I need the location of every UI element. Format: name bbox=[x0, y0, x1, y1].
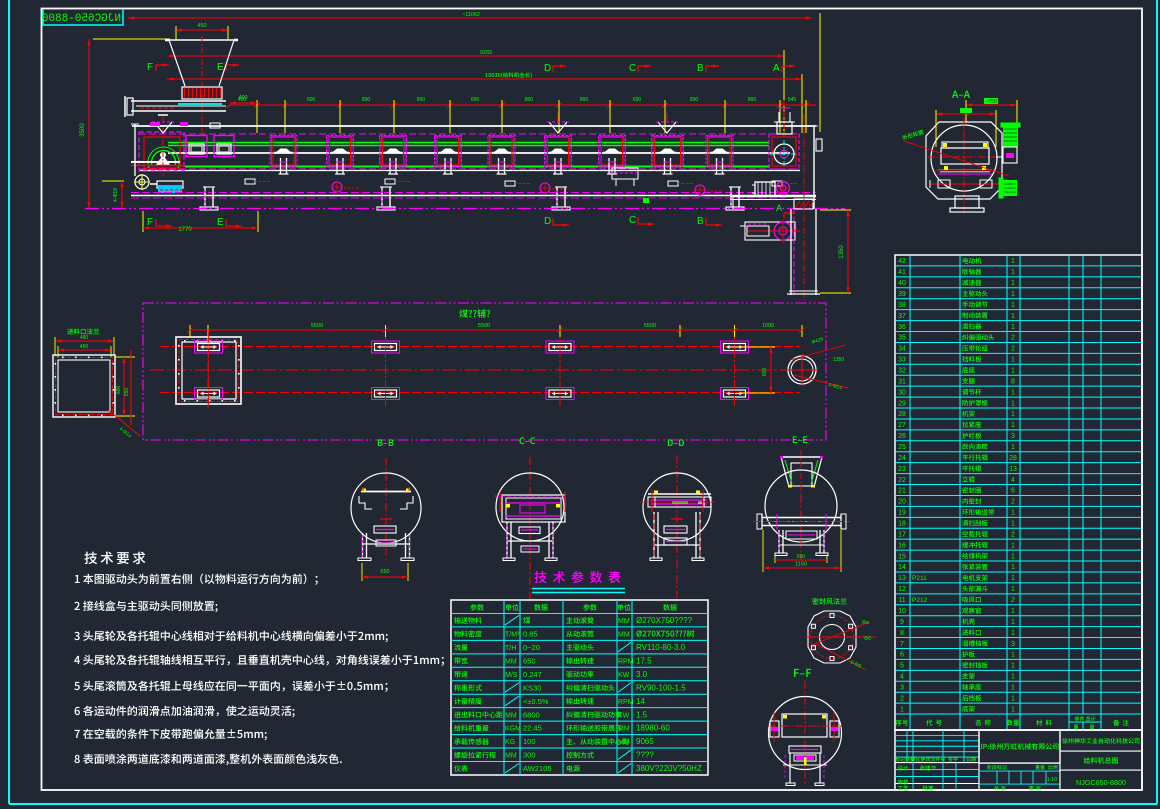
svg-text:MM: MM bbox=[618, 632, 630, 639]
svg-text:650: 650 bbox=[523, 656, 536, 665]
svg-text:650: 650 bbox=[124, 388, 130, 397]
svg-text:1: 1 bbox=[1011, 521, 1015, 528]
svg-text:MM: MM bbox=[618, 726, 630, 733]
svg-text:22.45: 22.45 bbox=[523, 724, 542, 733]
svg-text:0.85: 0.85 bbox=[523, 630, 538, 639]
svg-text:5500: 5500 bbox=[311, 323, 323, 329]
svg-text:T/M³: T/M³ bbox=[505, 632, 520, 639]
svg-text:????: ???? bbox=[636, 751, 654, 760]
svg-text:E: E bbox=[217, 217, 224, 228]
svg-text:MM: MM bbox=[505, 753, 517, 760]
svg-text:10: 10 bbox=[898, 608, 906, 615]
svg-text:800: 800 bbox=[748, 97, 757, 103]
svg-text:E: E bbox=[217, 62, 224, 73]
svg-text:2: 2 bbox=[1011, 335, 1015, 342]
svg-text:Ø270X750????: Ø270X750???? bbox=[636, 616, 693, 625]
svg-text:AW2105: AW2105 bbox=[523, 764, 552, 773]
svg-text:3.0: 3.0 bbox=[636, 670, 648, 679]
svg-text:1: 1 bbox=[1011, 586, 1015, 593]
svg-text:34: 34 bbox=[898, 346, 906, 353]
svg-text:1: 1 bbox=[1011, 684, 1015, 691]
svg-text:1000: 1000 bbox=[762, 323, 774, 329]
svg-text:RV110-80-3.0: RV110-80-3.0 bbox=[636, 643, 686, 652]
svg-text:1: 1 bbox=[1011, 400, 1015, 407]
svg-text:380V?220V?50HZ: 380V?220V?50HZ bbox=[636, 764, 702, 773]
svg-text:KW: KW bbox=[618, 672, 630, 679]
svg-text:M/S: M/S bbox=[505, 672, 518, 679]
svg-text:1350: 1350 bbox=[839, 245, 845, 259]
svg-text:1: 1 bbox=[1011, 411, 1015, 418]
svg-text:2: 2 bbox=[900, 695, 904, 702]
svg-text:1: 1 bbox=[1011, 313, 1015, 320]
svg-text:5500: 5500 bbox=[644, 323, 656, 329]
svg-text:1: 1 bbox=[900, 706, 904, 713]
svg-text:D: D bbox=[544, 216, 551, 227]
svg-text:5: 5 bbox=[900, 663, 904, 670]
svg-text:D: D bbox=[544, 63, 551, 74]
svg-text:2: 2 bbox=[1011, 597, 1015, 604]
svg-text:3: 3 bbox=[900, 684, 904, 691]
svg-text:B: B bbox=[697, 216, 704, 227]
svg-text:29: 29 bbox=[898, 400, 906, 407]
svg-text:21: 21 bbox=[898, 488, 906, 495]
svg-text:T/H: T/H bbox=[505, 645, 516, 652]
svg-text:650: 650 bbox=[797, 554, 806, 560]
svg-text:13: 13 bbox=[1009, 466, 1017, 473]
svg-text:18980-60: 18980-60 bbox=[636, 724, 670, 733]
svg-text:1: 1 bbox=[1011, 706, 1015, 713]
svg-text:2: 2 bbox=[1011, 499, 1015, 506]
svg-text:9: 9 bbox=[900, 619, 904, 626]
svg-text:37: 37 bbox=[898, 313, 906, 320]
svg-text:5500: 5500 bbox=[478, 323, 490, 329]
svg-text:KG: KG bbox=[505, 739, 515, 746]
svg-text:9065: 9065 bbox=[636, 737, 654, 746]
svg-text:4: 4 bbox=[900, 674, 904, 681]
svg-text:12: 12 bbox=[898, 586, 906, 593]
svg-text:13: 13 bbox=[898, 575, 906, 582]
svg-text:P211: P211 bbox=[912, 575, 927, 582]
svg-text:1: 1 bbox=[1011, 674, 1015, 681]
svg-text:19: 19 bbox=[898, 510, 906, 517]
svg-text:1: 1 bbox=[1011, 575, 1015, 582]
svg-text:1: 1 bbox=[1011, 291, 1015, 298]
svg-text:NJGC650-8800: NJGC650-8800 bbox=[1076, 778, 1126, 787]
svg-text:14: 14 bbox=[898, 564, 906, 571]
svg-text:40: 40 bbox=[898, 280, 906, 287]
svg-text:41: 41 bbox=[898, 269, 906, 276]
svg-text:Φa: Φa bbox=[862, 620, 869, 626]
svg-text:28: 28 bbox=[898, 411, 906, 418]
svg-text:14: 14 bbox=[636, 697, 645, 706]
svg-text:23: 23 bbox=[898, 466, 906, 473]
svg-text:0~20: 0~20 bbox=[523, 643, 540, 652]
svg-text:A: A bbox=[773, 63, 780, 74]
svg-text:1350: 1350 bbox=[833, 357, 844, 363]
svg-text:RPM: RPM bbox=[618, 658, 634, 665]
svg-text:1: 1 bbox=[1011, 269, 1015, 276]
svg-text:1: 1 bbox=[1011, 510, 1015, 517]
svg-text:1: 1 bbox=[1011, 608, 1015, 615]
svg-text:Φ0: Φ0 bbox=[864, 636, 871, 642]
svg-text:4: 4 bbox=[1011, 477, 1015, 484]
svg-text:1: 1 bbox=[1011, 444, 1015, 451]
svg-text:1: 1 bbox=[1011, 422, 1015, 429]
svg-text:400: 400 bbox=[238, 95, 247, 101]
svg-text:1: 1 bbox=[1011, 542, 1015, 549]
svg-text:4-Φ18: 4-Φ18 bbox=[113, 188, 119, 202]
svg-text:1: 1 bbox=[1011, 258, 1015, 265]
svg-text:1: 1 bbox=[1011, 302, 1015, 309]
svg-text:1: 1 bbox=[1011, 389, 1015, 396]
svg-text:300: 300 bbox=[523, 751, 536, 760]
svg-text:3: 3 bbox=[1011, 641, 1015, 648]
svg-text:480: 480 bbox=[80, 335, 89, 341]
svg-text:100: 100 bbox=[523, 737, 536, 746]
svg-text:7: 7 bbox=[900, 641, 904, 648]
svg-text:KS30: KS30 bbox=[523, 683, 541, 692]
svg-text:RV90-100-1.5: RV90-100-1.5 bbox=[636, 683, 686, 692]
svg-text:<±0.5%: <±0.5% bbox=[523, 697, 549, 706]
svg-text:1: 1 bbox=[1011, 324, 1015, 331]
svg-text:2: 2 bbox=[1011, 531, 1015, 538]
svg-text:6800: 6800 bbox=[523, 710, 540, 719]
svg-text:RPM: RPM bbox=[618, 699, 634, 706]
svg-text:18: 18 bbox=[898, 521, 906, 528]
svg-text:6: 6 bbox=[900, 652, 904, 659]
svg-text:1: 1 bbox=[1011, 357, 1015, 364]
svg-text:8: 8 bbox=[1011, 378, 1015, 385]
svg-text:0.247: 0.247 bbox=[523, 670, 542, 679]
svg-text:38: 38 bbox=[898, 302, 906, 309]
svg-text:32: 32 bbox=[898, 368, 906, 375]
svg-text:P212: P212 bbox=[912, 597, 928, 604]
svg-text:B: B bbox=[697, 63, 704, 74]
svg-text:1: 1 bbox=[1011, 619, 1015, 626]
svg-text:800: 800 bbox=[362, 97, 371, 103]
svg-text:800: 800 bbox=[417, 97, 426, 103]
svg-text:3: 3 bbox=[1011, 433, 1015, 440]
svg-text:800: 800 bbox=[690, 97, 699, 103]
svg-text:1: 1 bbox=[1011, 368, 1015, 375]
svg-text:650: 650 bbox=[762, 368, 768, 377]
svg-text:450: 450 bbox=[80, 344, 89, 350]
svg-text:~11062: ~11062 bbox=[462, 12, 480, 18]
svg-text:1: 1 bbox=[1011, 564, 1015, 571]
svg-text:11: 11 bbox=[898, 597, 905, 604]
svg-text:33: 33 bbox=[898, 357, 906, 364]
svg-text:9265: 9265 bbox=[480, 50, 492, 56]
svg-text:MM: MM bbox=[618, 618, 630, 625]
svg-text:42: 42 bbox=[898, 258, 906, 265]
svg-text:F: F bbox=[147, 62, 153, 73]
svg-text:1:10: 1:10 bbox=[1047, 777, 1058, 783]
svg-text:600: 600 bbox=[116, 386, 122, 395]
svg-text:2: 2 bbox=[1011, 346, 1015, 353]
svg-text:450: 450 bbox=[197, 23, 206, 29]
svg-text:KW: KW bbox=[618, 712, 630, 719]
svg-text:1: 1 bbox=[1011, 695, 1015, 702]
svg-text:39: 39 bbox=[898, 291, 906, 298]
svg-text:1770: 1770 bbox=[178, 227, 192, 233]
svg-text:~750: ~750 bbox=[985, 99, 996, 105]
svg-text:6: 6 bbox=[1011, 488, 1015, 495]
svg-text:MM: MM bbox=[505, 658, 517, 665]
svg-text:25: 25 bbox=[898, 444, 906, 451]
svg-text:1: 1 bbox=[1011, 630, 1015, 637]
svg-text:35: 35 bbox=[898, 335, 906, 342]
svg-text:17.5: 17.5 bbox=[636, 656, 652, 665]
svg-text:1: 1 bbox=[1011, 663, 1015, 670]
svg-text:650: 650 bbox=[380, 569, 389, 575]
svg-text:600: 600 bbox=[307, 97, 316, 103]
svg-text:30: 30 bbox=[898, 389, 906, 396]
svg-text:26: 26 bbox=[898, 433, 906, 440]
svg-text:C: C bbox=[629, 63, 636, 74]
svg-text:1: 1 bbox=[1011, 553, 1015, 560]
svg-text:28: 28 bbox=[1009, 455, 1017, 462]
svg-text:545: 545 bbox=[788, 97, 797, 103]
svg-text:600: 600 bbox=[633, 97, 642, 103]
svg-text:MM: MM bbox=[505, 712, 517, 719]
svg-text:1: 1 bbox=[1011, 280, 1015, 287]
svg-text:C: C bbox=[629, 215, 636, 226]
svg-text:3500: 3500 bbox=[80, 123, 86, 137]
svg-text:15: 15 bbox=[898, 553, 906, 560]
svg-text:KGM: KGM bbox=[505, 726, 521, 733]
svg-text:17: 17 bbox=[898, 531, 906, 538]
svg-text:800: 800 bbox=[525, 97, 534, 103]
svg-text:22: 22 bbox=[898, 477, 906, 484]
svg-text:8: 8 bbox=[900, 630, 904, 637]
svg-text:MM: MM bbox=[618, 739, 630, 746]
svg-text:24: 24 bbox=[898, 455, 906, 462]
svg-text:F: F bbox=[147, 217, 153, 228]
svg-text:A: A bbox=[776, 203, 782, 213]
svg-text:27: 27 bbox=[898, 422, 906, 429]
svg-text:800: 800 bbox=[580, 97, 589, 103]
svg-text:600: 600 bbox=[471, 97, 480, 103]
svg-text:31: 31 bbox=[898, 378, 906, 385]
svg-text:1.5: 1.5 bbox=[636, 710, 648, 719]
svg-text:1: 1 bbox=[1011, 652, 1015, 659]
svg-text:1150: 1150 bbox=[795, 562, 807, 568]
svg-text:16: 16 bbox=[898, 542, 906, 549]
svg-text:36: 36 bbox=[898, 324, 906, 331]
svg-text:20: 20 bbox=[898, 499, 906, 506]
svg-text:NJGC650-8800: NJGC650-8800 bbox=[42, 13, 121, 25]
